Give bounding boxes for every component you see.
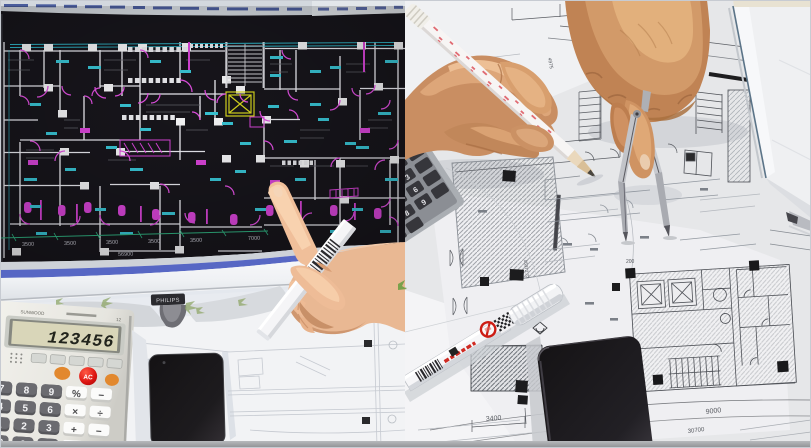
svg-text:200: 200 <box>626 259 635 265</box>
svg-text:×: × <box>72 407 79 418</box>
svg-text:+: + <box>71 425 78 436</box>
svg-text:PHILIPS: PHILIPS <box>156 298 180 305</box>
svg-text:3400: 3400 <box>486 415 502 423</box>
svg-text:−: − <box>98 390 105 401</box>
svg-text:%: % <box>71 389 81 401</box>
svg-text:AC: AC <box>83 374 93 382</box>
svg-text:−: − <box>95 426 102 437</box>
svg-text:12: 12 <box>116 317 122 322</box>
